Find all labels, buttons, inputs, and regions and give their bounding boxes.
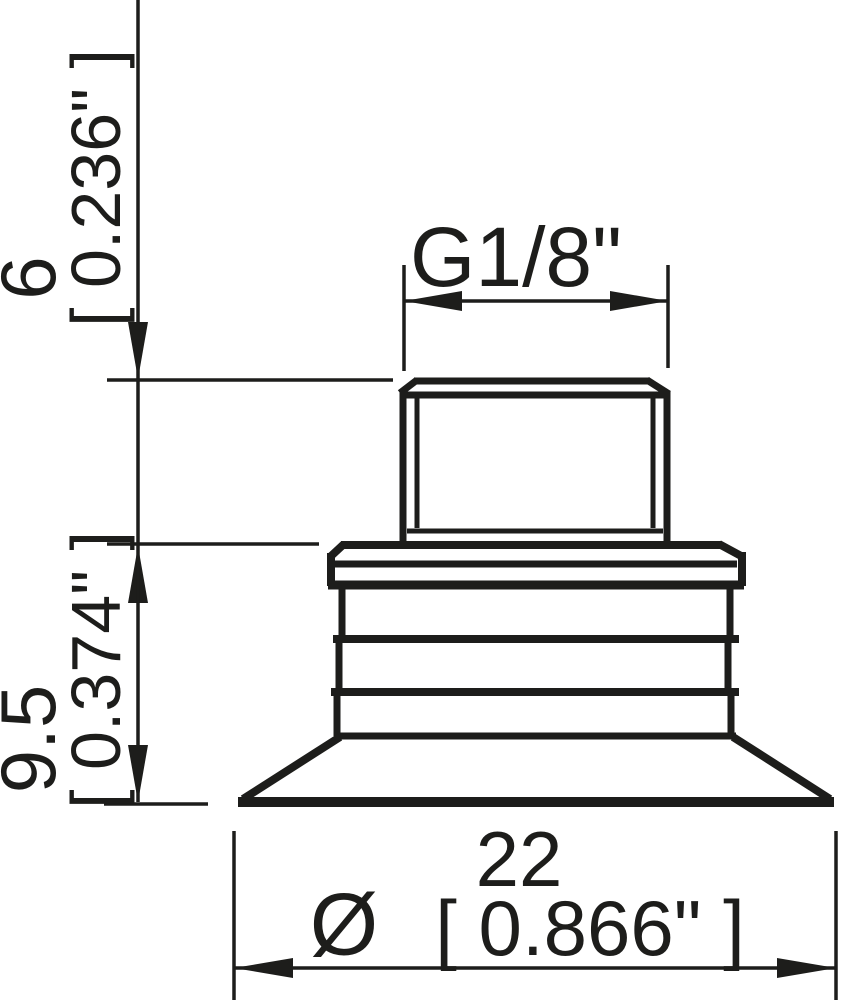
dimension-diameter-22: 22 Ø [ 0.866" ]: [234, 815, 836, 1000]
skirt-left-edge: [243, 737, 340, 799]
sealing-lip-outline: [238, 737, 834, 802]
skirt-right-edge: [733, 737, 830, 799]
suction-cup-drawing: 6 [ 0.236" ] 9.5 [ 0.374" ] G1/8" 22 Ø […: [0, 0, 842, 1000]
diameter-22-inch-label: [ 0.866" ]: [435, 884, 745, 972]
dia22-arrow-left-icon: [234, 958, 293, 978]
cup-body-outline: [331, 585, 739, 736]
thread-size-label: G1/8": [410, 210, 622, 304]
dimension-thread-g18: G1/8": [404, 210, 668, 371]
thread-stud-outline: [400, 380, 670, 543]
dimension-height-9-5: 9.5 [ 0.374" ]: [0, 531, 208, 809]
diameter-symbol-icon: Ø: [310, 875, 378, 974]
dia22-arrow-right-icon: [777, 958, 836, 978]
height-95-inch-label: [ 0.374" ]: [57, 531, 135, 809]
mounting-flange-outline: [328, 544, 744, 586]
dimension-height-6: 6 [ 0.236" ]: [0, 0, 393, 546]
technical-drawing-canvas: 6 [ 0.236" ] 9.5 [ 0.374" ] G1/8" 22 Ø […: [0, 0, 842, 1000]
height-6-inch-label: [ 0.236" ]: [57, 49, 135, 327]
dim6-arrow-down-icon: [128, 322, 148, 379]
